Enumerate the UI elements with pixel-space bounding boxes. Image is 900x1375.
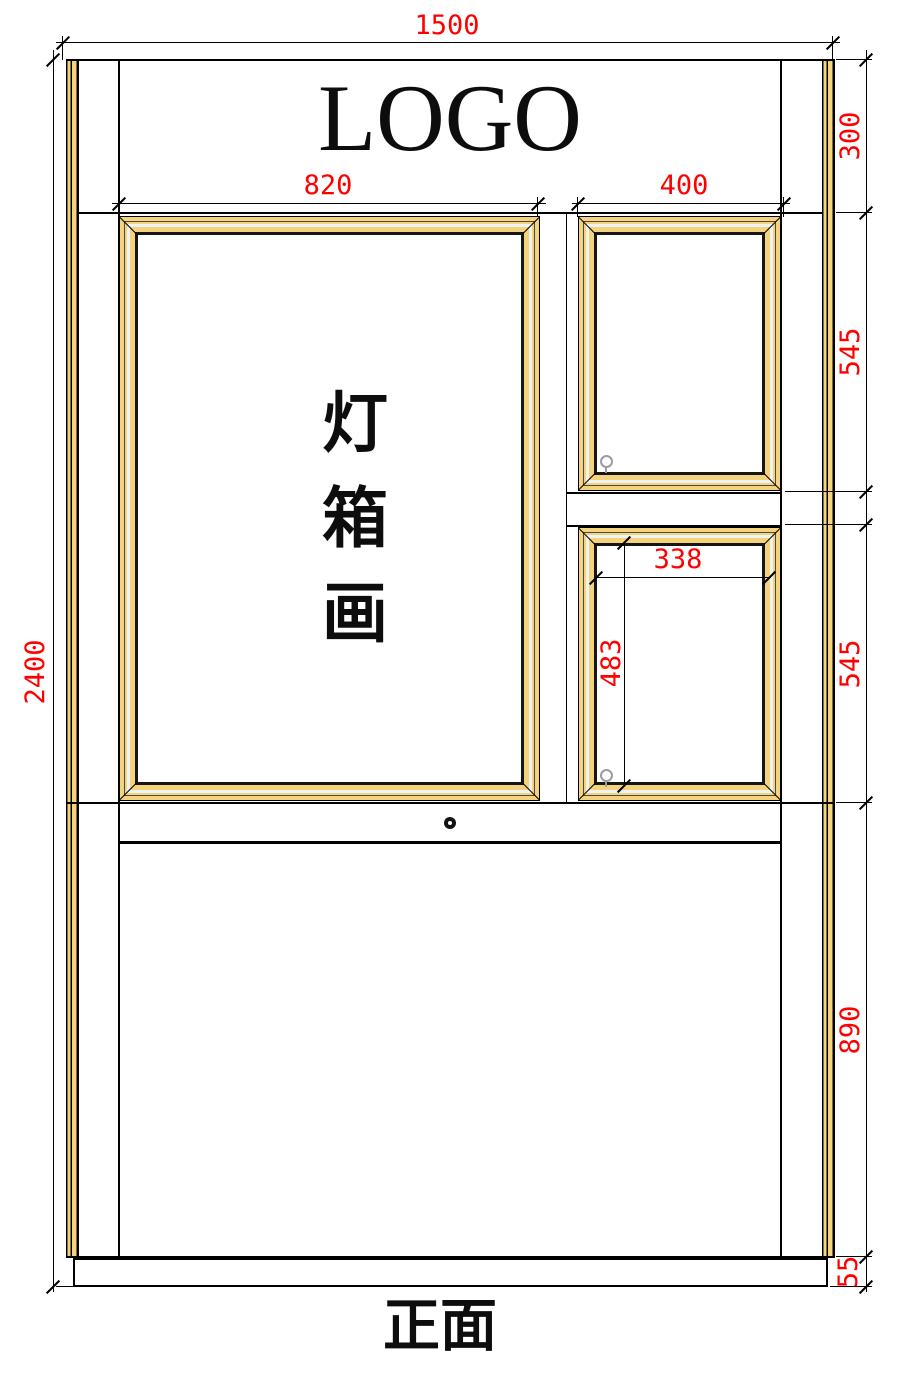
dim-total-height-label: 2400 bbox=[22, 612, 50, 732]
dim-upper-frame-height-label: 545 bbox=[837, 292, 865, 412]
dim-tick bbox=[56, 36, 70, 50]
dim-opening-width-label: 338 bbox=[628, 546, 728, 574]
extension-line bbox=[785, 524, 872, 525]
extension-line bbox=[783, 197, 784, 217]
cabinet-right-edge-strip bbox=[822, 60, 835, 1258]
header-divider-line bbox=[79, 212, 822, 214]
upper-door-frame bbox=[578, 216, 781, 491]
door-divider-line bbox=[566, 214, 567, 803]
dim-line-total-width bbox=[56, 42, 840, 43]
dim-header-height-label: 300 bbox=[837, 76, 865, 196]
cabinet-top-line bbox=[66, 59, 835, 61]
dim-tick bbox=[531, 197, 545, 211]
door-knob bbox=[444, 817, 456, 829]
logo-text: LOGO bbox=[119, 68, 781, 168]
dim-lower-frame-height-label: 545 bbox=[837, 604, 865, 724]
dim-opening-height-label: 483 bbox=[598, 603, 626, 723]
lightbox-label-char: 箱 bbox=[318, 471, 392, 566]
extension-line bbox=[785, 491, 872, 492]
dim-lower-panel-height-label: 890 bbox=[837, 970, 865, 1090]
dim-side-frame-width-label: 400 bbox=[634, 172, 734, 200]
extension-line bbox=[62, 36, 63, 60]
dim-lightbox-width-label: 820 bbox=[278, 172, 378, 200]
extension-line bbox=[836, 212, 872, 213]
lightbox-label: 灯 箱 画 bbox=[318, 376, 392, 661]
extension-line bbox=[537, 197, 538, 217]
door-rail-top-line bbox=[566, 492, 781, 494]
cabinet-left-edge-strip bbox=[66, 60, 79, 1258]
extension-line bbox=[832, 36, 833, 60]
extension-line bbox=[836, 59, 872, 60]
dim-tick bbox=[571, 197, 585, 211]
dim-tick bbox=[826, 36, 840, 50]
dim-total-width-label: 1500 bbox=[397, 12, 497, 40]
dim-line-side-frame-width bbox=[572, 203, 790, 204]
view-title: 正面 bbox=[330, 1296, 550, 1356]
dim-line-right-chain bbox=[866, 50, 867, 1292]
shelf-line bbox=[66, 802, 835, 804]
dim-base-height-label: 55 bbox=[835, 1212, 863, 1332]
dim-line-lightbox-width bbox=[112, 203, 546, 204]
hinge-pin-icon bbox=[600, 455, 613, 468]
extension-line bbox=[56, 1286, 73, 1287]
extension-line bbox=[836, 802, 872, 803]
extension-line bbox=[577, 197, 578, 217]
lightbox-label-char: 画 bbox=[318, 566, 392, 661]
dim-line-total-height bbox=[53, 50, 54, 1292]
drawer-band-bottom-line bbox=[119, 841, 781, 844]
elevation-drawing-sheet: LOGO 灯 箱 画 150 bbox=[0, 0, 900, 1375]
upper-door-opening bbox=[594, 232, 765, 475]
lightbox-label-char: 灯 bbox=[318, 376, 392, 471]
dim-line-opening-width bbox=[596, 577, 769, 578]
base-plinth bbox=[73, 1258, 828, 1287]
hinge-pin-icon bbox=[600, 769, 613, 782]
